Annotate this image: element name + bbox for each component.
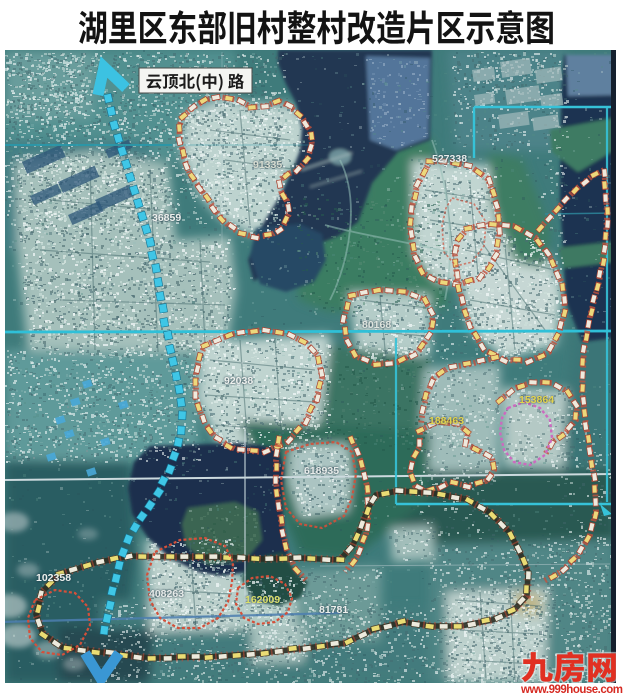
svg-text:618935: 618935 [304,465,339,477]
svg-text:408263: 408263 [149,588,184,600]
svg-text:153864: 153864 [519,394,554,406]
svg-text:527338: 527338 [432,153,467,165]
svg-text:188463: 188463 [429,415,464,427]
svg-text:162009: 162009 [245,594,280,606]
svg-text:36859: 36859 [152,212,181,224]
svg-text:91335: 91335 [253,159,282,171]
svg-text:80168: 80168 [362,319,391,331]
svg-text:www.999house.com: www.999house.com [520,684,623,696]
svg-text:92038: 92038 [224,375,253,387]
svg-text:81781: 81781 [319,604,348,616]
svg-text:102358: 102358 [36,572,71,584]
